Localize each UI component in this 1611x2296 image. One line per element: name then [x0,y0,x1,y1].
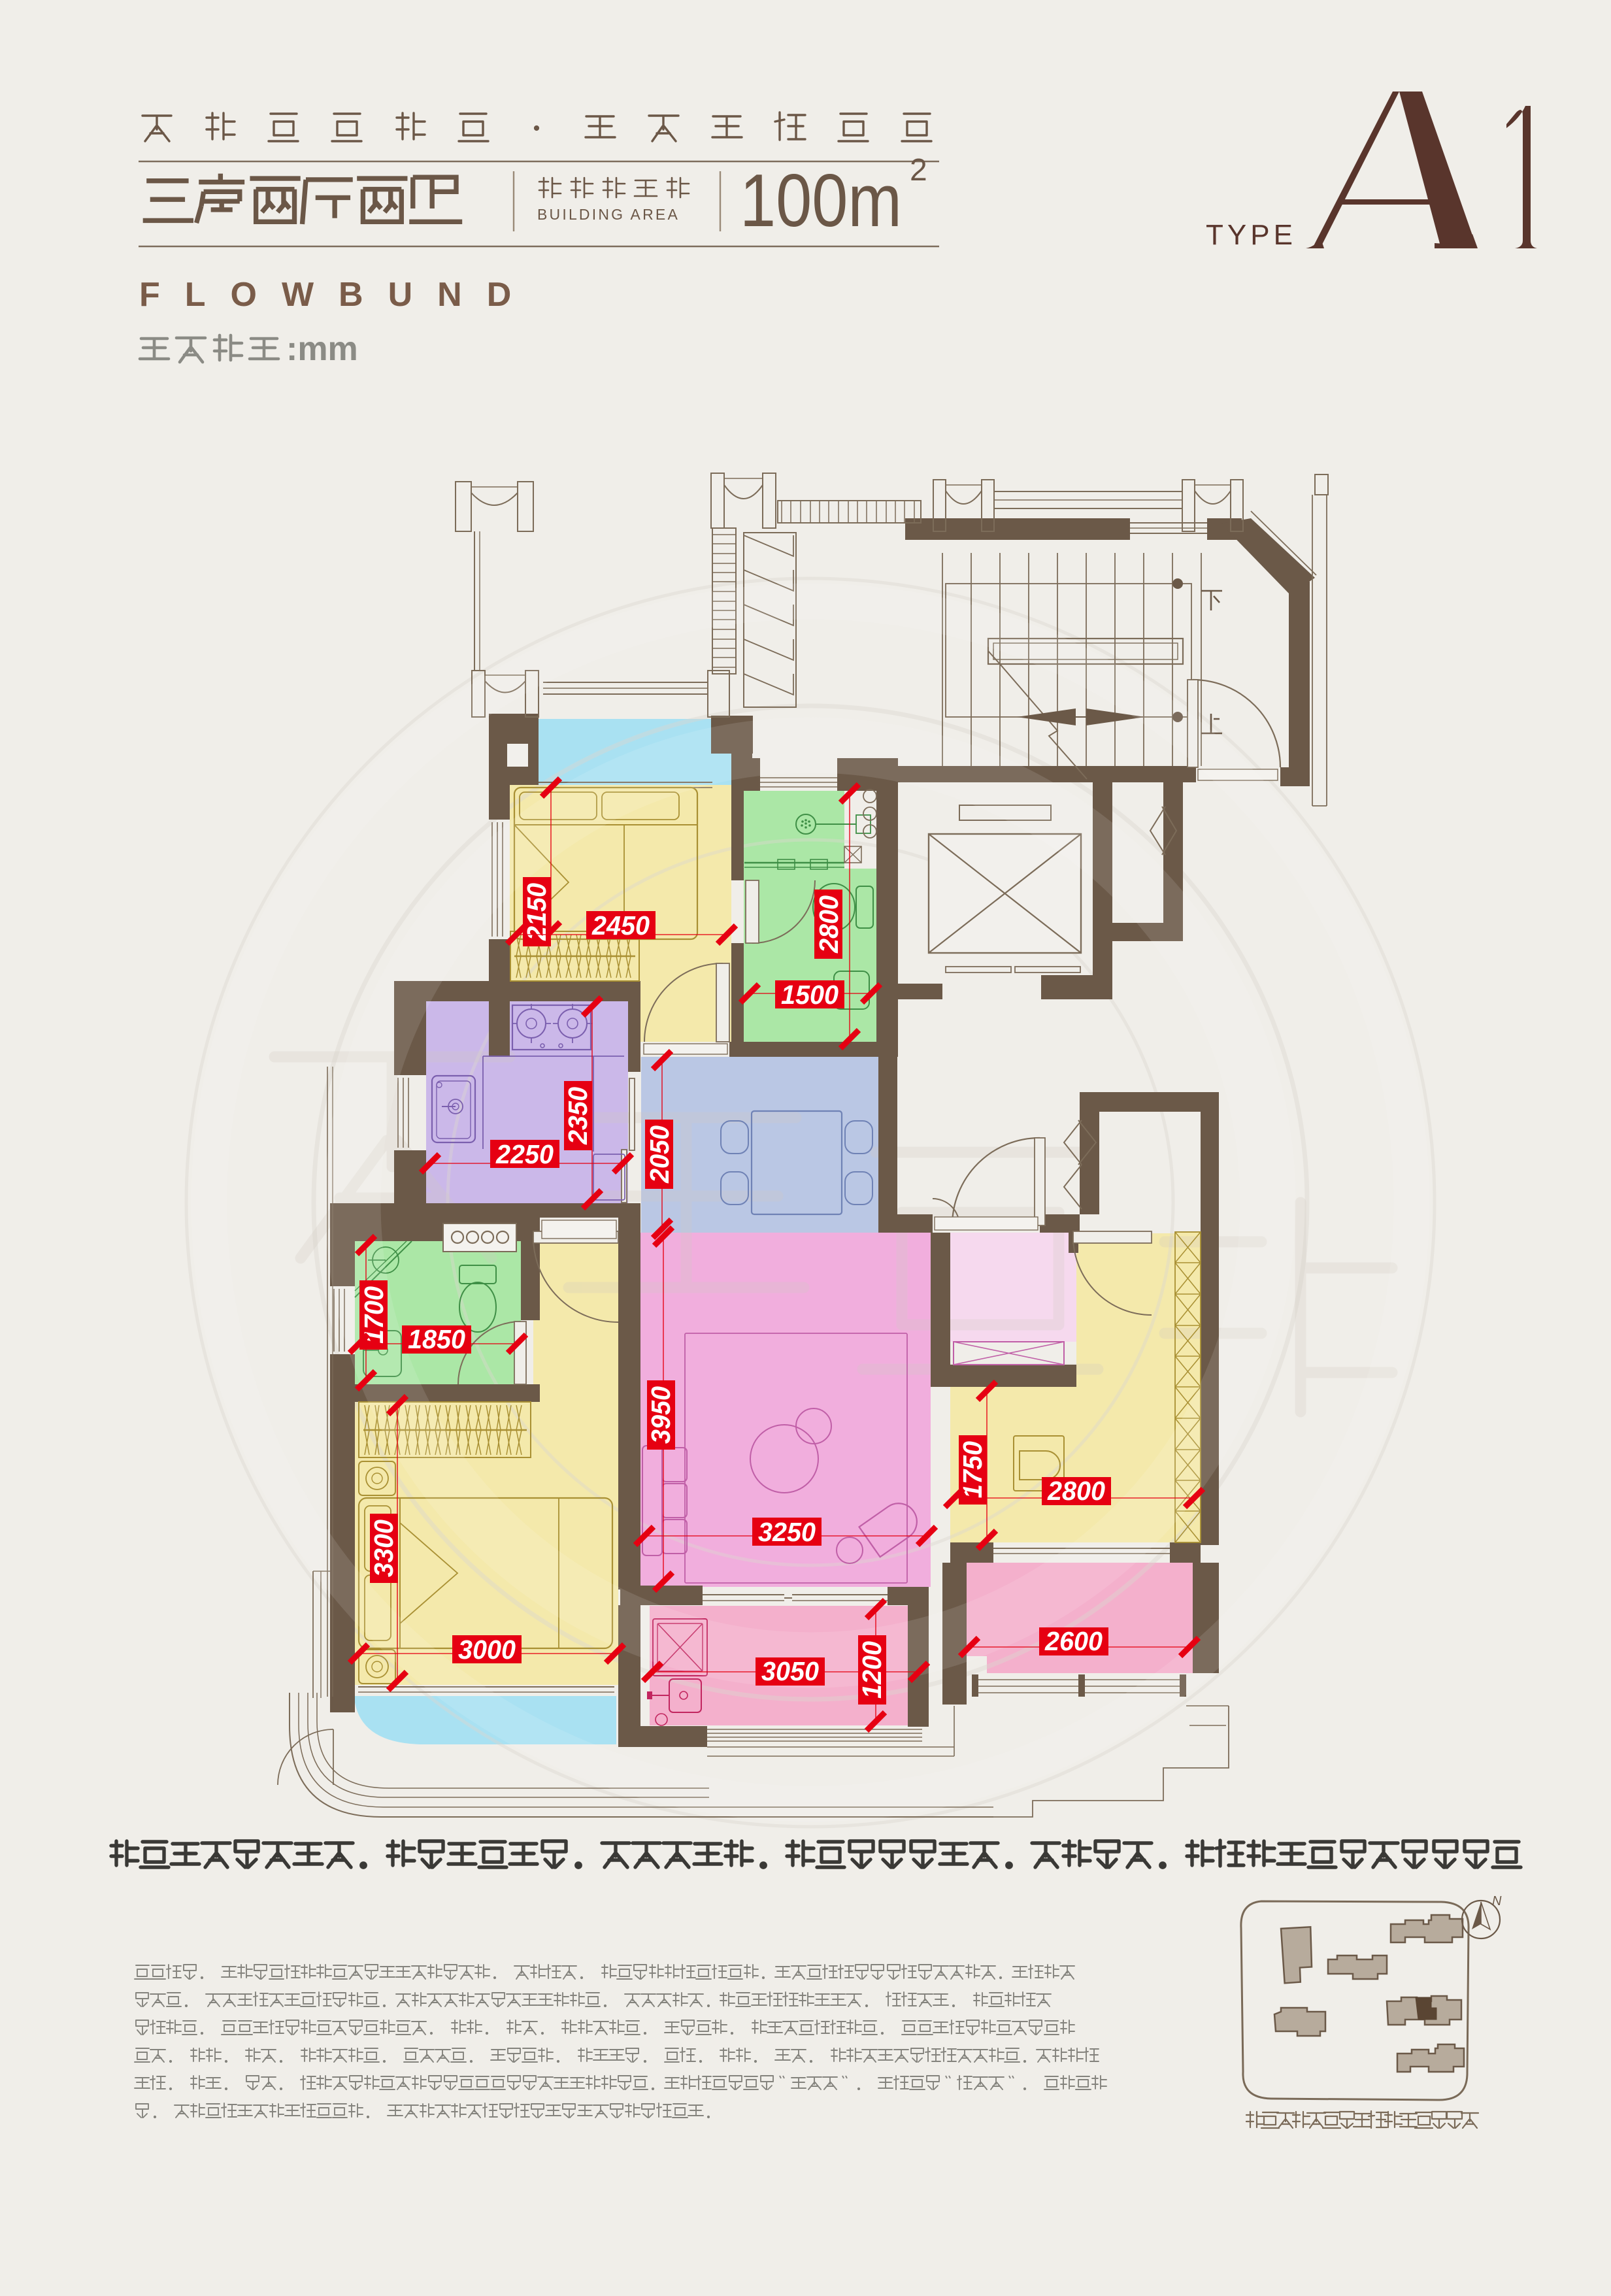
svg-text:3000: 3000 [458,1635,516,1665]
svg-text:2350: 2350 [563,1087,593,1145]
svg-text:BUILDING AREA: BUILDING AREA [537,206,680,223]
svg-text:3050: 3050 [761,1656,819,1686]
svg-text:3250: 3250 [758,1517,816,1547]
svg-text:2150: 2150 [522,883,552,941]
svg-text:2250: 2250 [495,1139,554,1169]
svg-text:2800: 2800 [814,895,844,954]
svg-text:TYPE: TYPE [1206,219,1297,251]
svg-text:FLOWBUND: FLOWBUND [139,276,536,314]
svg-text:100m: 100m [740,159,902,242]
svg-text:2450: 2450 [591,910,650,940]
svg-text::mm: :mm [286,330,358,368]
svg-text:3950: 3950 [646,1386,676,1444]
svg-text:2: 2 [910,153,927,188]
svg-text:2600: 2600 [1044,1626,1103,1656]
svg-text:1200: 1200 [857,1641,887,1699]
svg-text:3300: 3300 [369,1520,399,1577]
svg-text:2050: 2050 [644,1125,674,1184]
svg-text:1850: 1850 [408,1324,465,1354]
svg-text:N: N [1492,1894,1502,1908]
svg-text:2800: 2800 [1047,1476,1105,1506]
svg-text:1500: 1500 [781,980,839,1010]
